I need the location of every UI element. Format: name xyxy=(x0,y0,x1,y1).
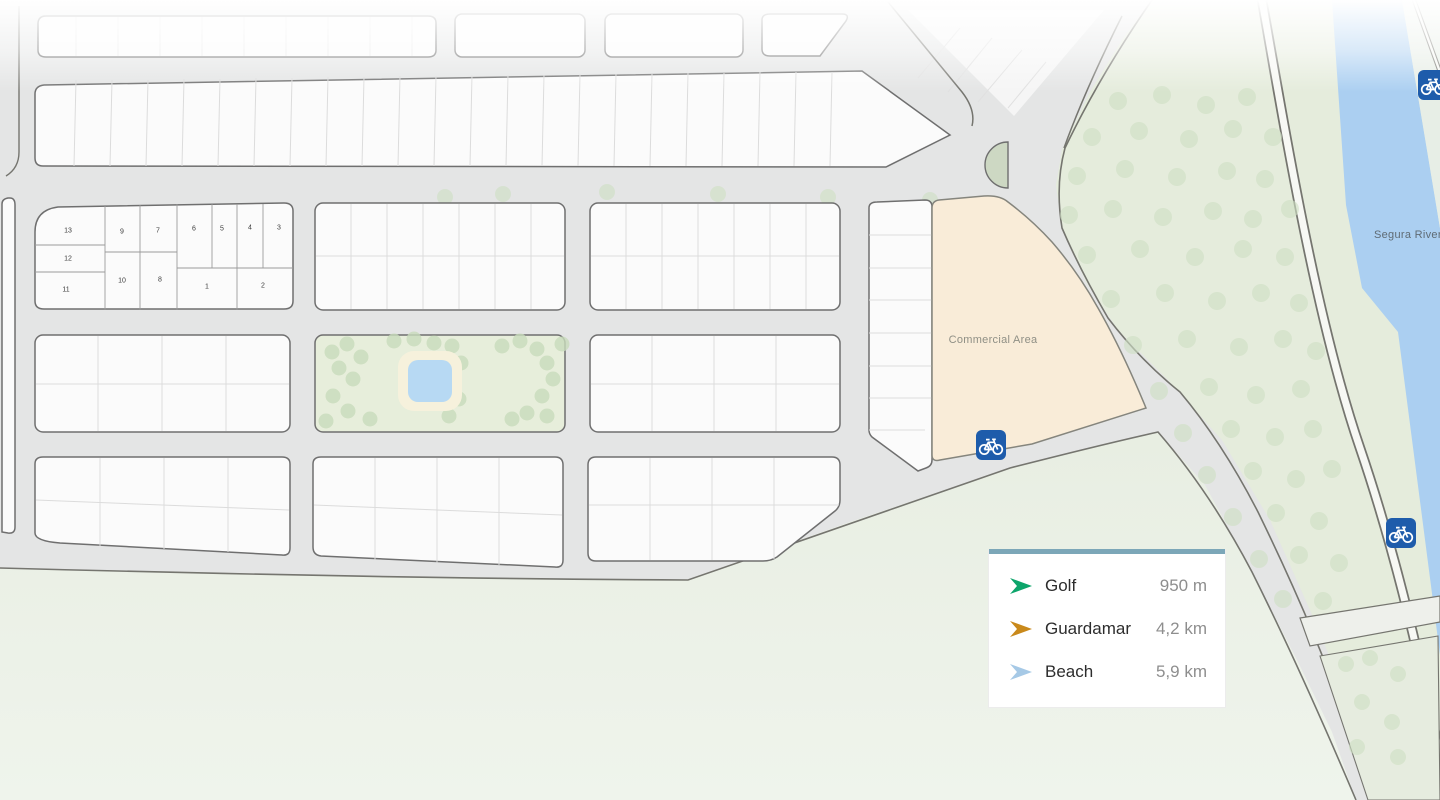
legend-row-beach: Beach 5,9 km xyxy=(989,650,1225,693)
plot-number: 3 xyxy=(277,225,281,232)
direction-arrow-icon xyxy=(1009,620,1033,638)
legend-label: Guardamar xyxy=(1045,619,1131,639)
site-map: 13 9 7 6 5 4 3 12 10 8 11 1 2 Commercial… xyxy=(0,0,1440,800)
plot-number: 13 xyxy=(64,228,72,235)
plot-number: 2 xyxy=(261,283,265,290)
legend-value: 4,2 km xyxy=(1156,619,1207,639)
distance-legend: Golf 950 m Guardamar 4,2 km Beach 5,9 km xyxy=(988,549,1226,708)
direction-arrow-icon xyxy=(1009,663,1033,681)
bike-route-marker xyxy=(1418,70,1440,100)
plot-number: 7 xyxy=(156,228,160,235)
commercial-area-label: Commercial Area xyxy=(949,334,1038,346)
plot-number: 6 xyxy=(192,226,196,233)
residential-blocks xyxy=(2,14,950,567)
legend-row-guardamar: Guardamar 4,2 km xyxy=(989,607,1225,650)
bicycle-icon xyxy=(976,430,1006,460)
plot-number: 8 xyxy=(158,277,162,284)
top-fade xyxy=(0,0,1440,92)
block-numbered xyxy=(35,203,293,309)
river-label: Segura River xyxy=(1374,229,1440,241)
legend-value: 5,9 km xyxy=(1156,662,1207,682)
plot-number: 11 xyxy=(62,287,69,294)
plot-number: 9 xyxy=(120,229,124,236)
direction-arrow-icon xyxy=(1009,577,1033,595)
bike-route-marker xyxy=(976,430,1006,460)
legend-row-golf: Golf 950 m xyxy=(989,564,1225,607)
park-block xyxy=(315,332,570,433)
block-r5-b xyxy=(313,457,563,567)
plot-number: 10 xyxy=(118,278,126,285)
plot-number: 4 xyxy=(248,225,252,232)
plot-number: 1 xyxy=(205,284,209,291)
plot-number: 12 xyxy=(64,256,72,263)
block-left-strip xyxy=(2,198,15,533)
block-r5-a xyxy=(35,457,290,555)
legend-accent-bar xyxy=(989,549,1225,554)
legend-value: 950 m xyxy=(1160,576,1207,596)
legend-label: Beach xyxy=(1045,662,1093,682)
legend-label: Golf xyxy=(1045,576,1076,596)
bike-route-marker xyxy=(1386,518,1416,548)
bicycle-icon xyxy=(1386,518,1416,548)
bicycle-icon xyxy=(1418,70,1440,100)
plot-number: 5 xyxy=(220,226,224,233)
swimming-pool xyxy=(408,360,452,402)
